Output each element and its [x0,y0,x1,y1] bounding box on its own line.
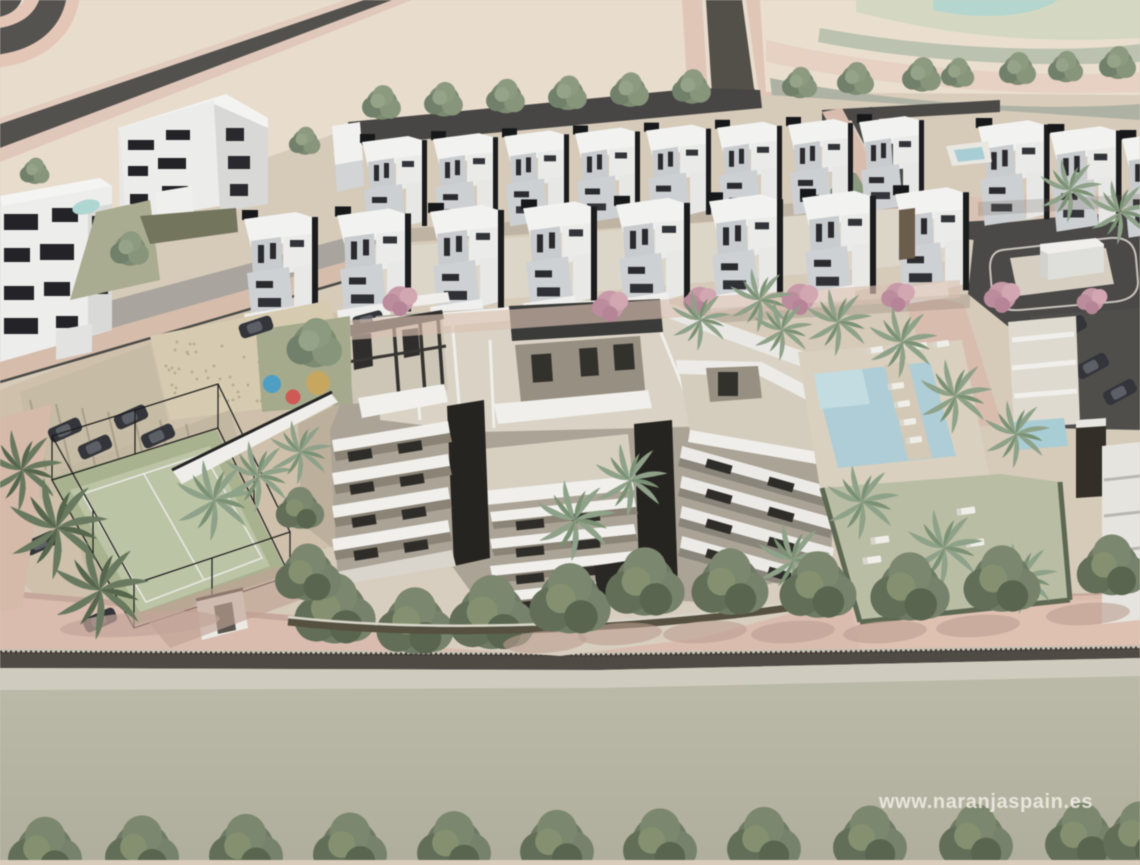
svg-text:www.naranjaspain.es: www.naranjaspain.es [878,791,1093,813]
